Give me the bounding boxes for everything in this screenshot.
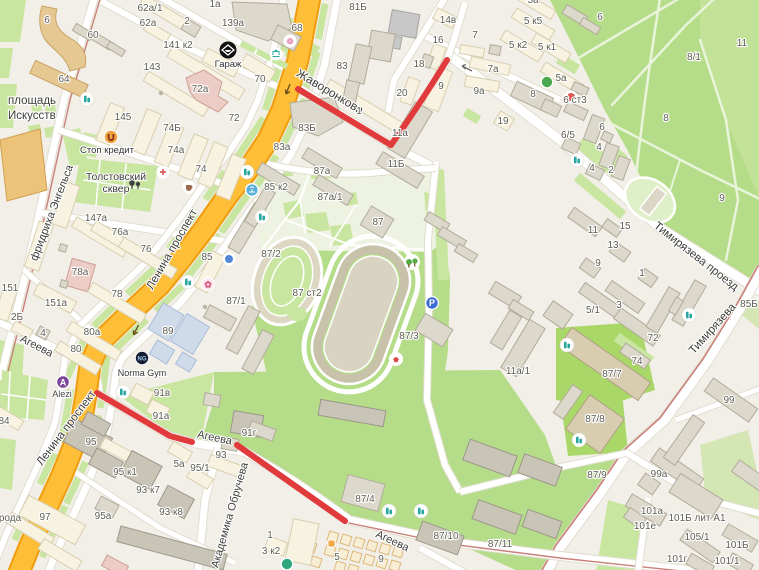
svg-text:9: 9 <box>595 258 601 269</box>
svg-text:6: 6 <box>597 12 603 23</box>
svg-text:9: 9 <box>378 554 384 565</box>
svg-text:87/10: 87/10 <box>433 531 458 542</box>
svg-text:5а: 5а <box>555 73 567 84</box>
svg-text:2: 2 <box>608 165 614 176</box>
svg-text:141 к2: 141 к2 <box>163 40 193 51</box>
svg-text:64: 64 <box>58 74 70 85</box>
svg-text:95: 95 <box>85 437 97 448</box>
svg-text:101Б: 101Б <box>725 540 749 551</box>
svg-text:2Б: 2Б <box>11 312 24 323</box>
svg-text:9: 9 <box>438 81 444 92</box>
svg-text:6: 6 <box>44 15 50 26</box>
svg-text:74Б: 74Б <box>163 123 181 134</box>
svg-text:85: 85 <box>201 252 213 263</box>
svg-text:18: 18 <box>413 59 425 70</box>
svg-text:80: 80 <box>70 344 82 355</box>
svg-text:7а: 7а <box>487 64 499 75</box>
svg-text:2: 2 <box>184 16 190 27</box>
svg-text:83а: 83а <box>274 142 291 153</box>
svg-text:70: 70 <box>254 74 266 85</box>
svg-text:76: 76 <box>140 244 152 255</box>
svg-text:5а: 5а <box>173 459 185 470</box>
svg-text:11Б: 11Б <box>388 159 405 170</box>
svg-text:19: 19 <box>497 116 509 127</box>
svg-text:20: 20 <box>396 88 408 99</box>
svg-text:145: 145 <box>115 112 132 123</box>
svg-text:95 к1: 95 к1 <box>113 467 137 478</box>
svg-text:1: 1 <box>639 268 645 279</box>
svg-text:62а/1: 62а/1 <box>137 3 162 14</box>
svg-text:6: 6 <box>599 122 605 133</box>
svg-text:93: 93 <box>215 450 227 461</box>
svg-text:Norma Gym: Norma Gym <box>118 368 167 378</box>
svg-text:6 ст3: 6 ст3 <box>563 95 587 106</box>
svg-text:площадь: площадь <box>8 95 56 107</box>
svg-text:97: 97 <box>39 512 51 523</box>
svg-text:139а: 139а <box>222 18 245 29</box>
svg-text:74: 74 <box>631 356 643 367</box>
svg-text:5а: 5а <box>527 0 539 6</box>
svg-text:85Б: 85Б <box>740 299 758 310</box>
svg-text:72: 72 <box>647 333 659 344</box>
svg-text:78: 78 <box>111 289 123 300</box>
svg-text:99а: 99а <box>651 469 668 480</box>
svg-text:101а: 101а <box>641 506 664 517</box>
svg-text:87/11: 87/11 <box>488 539 513 550</box>
svg-text:85 к2: 85 к2 <box>264 182 288 193</box>
svg-text:1: 1 <box>356 106 362 117</box>
svg-text:A: A <box>60 378 67 388</box>
svg-text:Толстовский: Толстовский <box>86 171 146 183</box>
svg-text:101/1: 101/1 <box>714 556 739 567</box>
svg-text:95/1: 95/1 <box>190 463 210 474</box>
svg-text:4: 4 <box>589 163 595 174</box>
svg-text:рода: рода <box>0 513 22 524</box>
svg-text:80а: 80а <box>84 327 101 338</box>
svg-text:9а: 9а <box>473 86 485 97</box>
svg-text:15: 15 <box>619 221 631 232</box>
svg-text:81Б: 81Б <box>349 2 367 13</box>
svg-text:4: 4 <box>40 328 46 339</box>
svg-text:9: 9 <box>719 193 725 204</box>
svg-text:87/2: 87/2 <box>261 249 281 260</box>
svg-text:11: 11 <box>737 38 748 49</box>
svg-text:11: 11 <box>588 225 599 236</box>
svg-text:62а: 62а <box>140 18 157 29</box>
svg-text:8/1: 8/1 <box>687 52 701 63</box>
svg-text:105/1: 105/1 <box>684 532 709 543</box>
svg-text:87 ст2: 87 ст2 <box>292 288 321 299</box>
svg-text:8: 8 <box>530 89 536 100</box>
svg-text:сквер: сквер <box>103 183 130 195</box>
svg-text:87/8: 87/8 <box>585 414 605 425</box>
svg-text:89: 89 <box>162 326 174 337</box>
svg-text:Alezi: Alezi <box>52 389 72 399</box>
svg-text:87/3: 87/3 <box>399 331 419 342</box>
svg-text:87а: 87а <box>314 166 331 177</box>
svg-text:87/9: 87/9 <box>587 470 607 481</box>
svg-text:NG: NG <box>138 357 147 363</box>
svg-text:11а/1: 11а/1 <box>506 366 531 377</box>
svg-text:6/5: 6/5 <box>561 130 575 141</box>
svg-text:91а: 91а <box>153 411 170 422</box>
svg-text:87/4: 87/4 <box>355 494 375 505</box>
svg-text:✸: ✸ <box>392 355 400 365</box>
svg-text:95а: 95а <box>95 511 112 522</box>
svg-text:84: 84 <box>0 416 10 427</box>
svg-text:7: 7 <box>472 30 478 41</box>
svg-text:76а: 76а <box>112 227 129 238</box>
svg-text:83: 83 <box>336 61 348 72</box>
svg-text:11а: 11а <box>392 128 408 139</box>
svg-text:99: 99 <box>723 395 735 406</box>
svg-text:101Б лит А1: 101Б лит А1 <box>668 513 725 524</box>
svg-text:74а: 74а <box>168 145 185 156</box>
svg-text:74: 74 <box>195 164 207 175</box>
svg-text:P: P <box>429 298 435 308</box>
svg-text:93 к7: 93 к7 <box>136 485 160 496</box>
svg-text:✿: ✿ <box>204 280 212 290</box>
svg-text:14в: 14в <box>440 15 456 26</box>
svg-text:72: 72 <box>228 113 240 124</box>
svg-text:1: 1 <box>267 530 273 541</box>
svg-text:147а: 147а <box>85 213 108 224</box>
svg-text:87: 87 <box>372 217 384 228</box>
svg-text:3 к2: 3 к2 <box>262 546 281 557</box>
svg-text:16: 16 <box>432 35 444 46</box>
svg-text:5/1: 5/1 <box>586 305 600 316</box>
svg-text:5 к1: 5 к1 <box>538 42 557 53</box>
svg-text:13: 13 <box>607 240 619 251</box>
svg-text:72а: 72а <box>192 84 209 95</box>
svg-text:151а: 151а <box>45 298 68 309</box>
svg-text:91в: 91в <box>154 388 170 399</box>
svg-text:60: 60 <box>87 30 99 41</box>
svg-text:1а: 1а <box>209 0 221 10</box>
svg-text:68: 68 <box>291 23 303 34</box>
svg-text:5: 5 <box>334 552 340 563</box>
svg-text:151: 151 <box>2 283 19 294</box>
svg-text:8: 8 <box>663 113 669 124</box>
svg-text:3: 3 <box>616 300 622 311</box>
svg-text:87/7: 87/7 <box>602 369 622 380</box>
svg-text:87а/1: 87а/1 <box>317 192 342 203</box>
svg-text:Искусств: Искусств <box>8 110 56 122</box>
svg-text:4: 4 <box>596 142 602 153</box>
svg-text:78а: 78а <box>72 267 89 278</box>
svg-text:5 к5: 5 к5 <box>524 16 543 27</box>
svg-text:Стоп кредит: Стоп кредит <box>80 145 135 156</box>
svg-text:101е: 101е <box>634 521 657 532</box>
svg-text:5 к2: 5 к2 <box>509 40 528 51</box>
svg-text:101г: 101г <box>667 554 688 565</box>
svg-text:143: 143 <box>144 62 161 73</box>
svg-text:83Б: 83Б <box>298 123 316 134</box>
svg-text:87/1: 87/1 <box>226 296 246 307</box>
svg-text:93 к8: 93 к8 <box>159 507 183 518</box>
svg-text:91г: 91г <box>242 428 257 439</box>
svg-text:Гараж: Гараж <box>215 59 242 70</box>
svg-text:❁: ❁ <box>286 37 294 47</box>
